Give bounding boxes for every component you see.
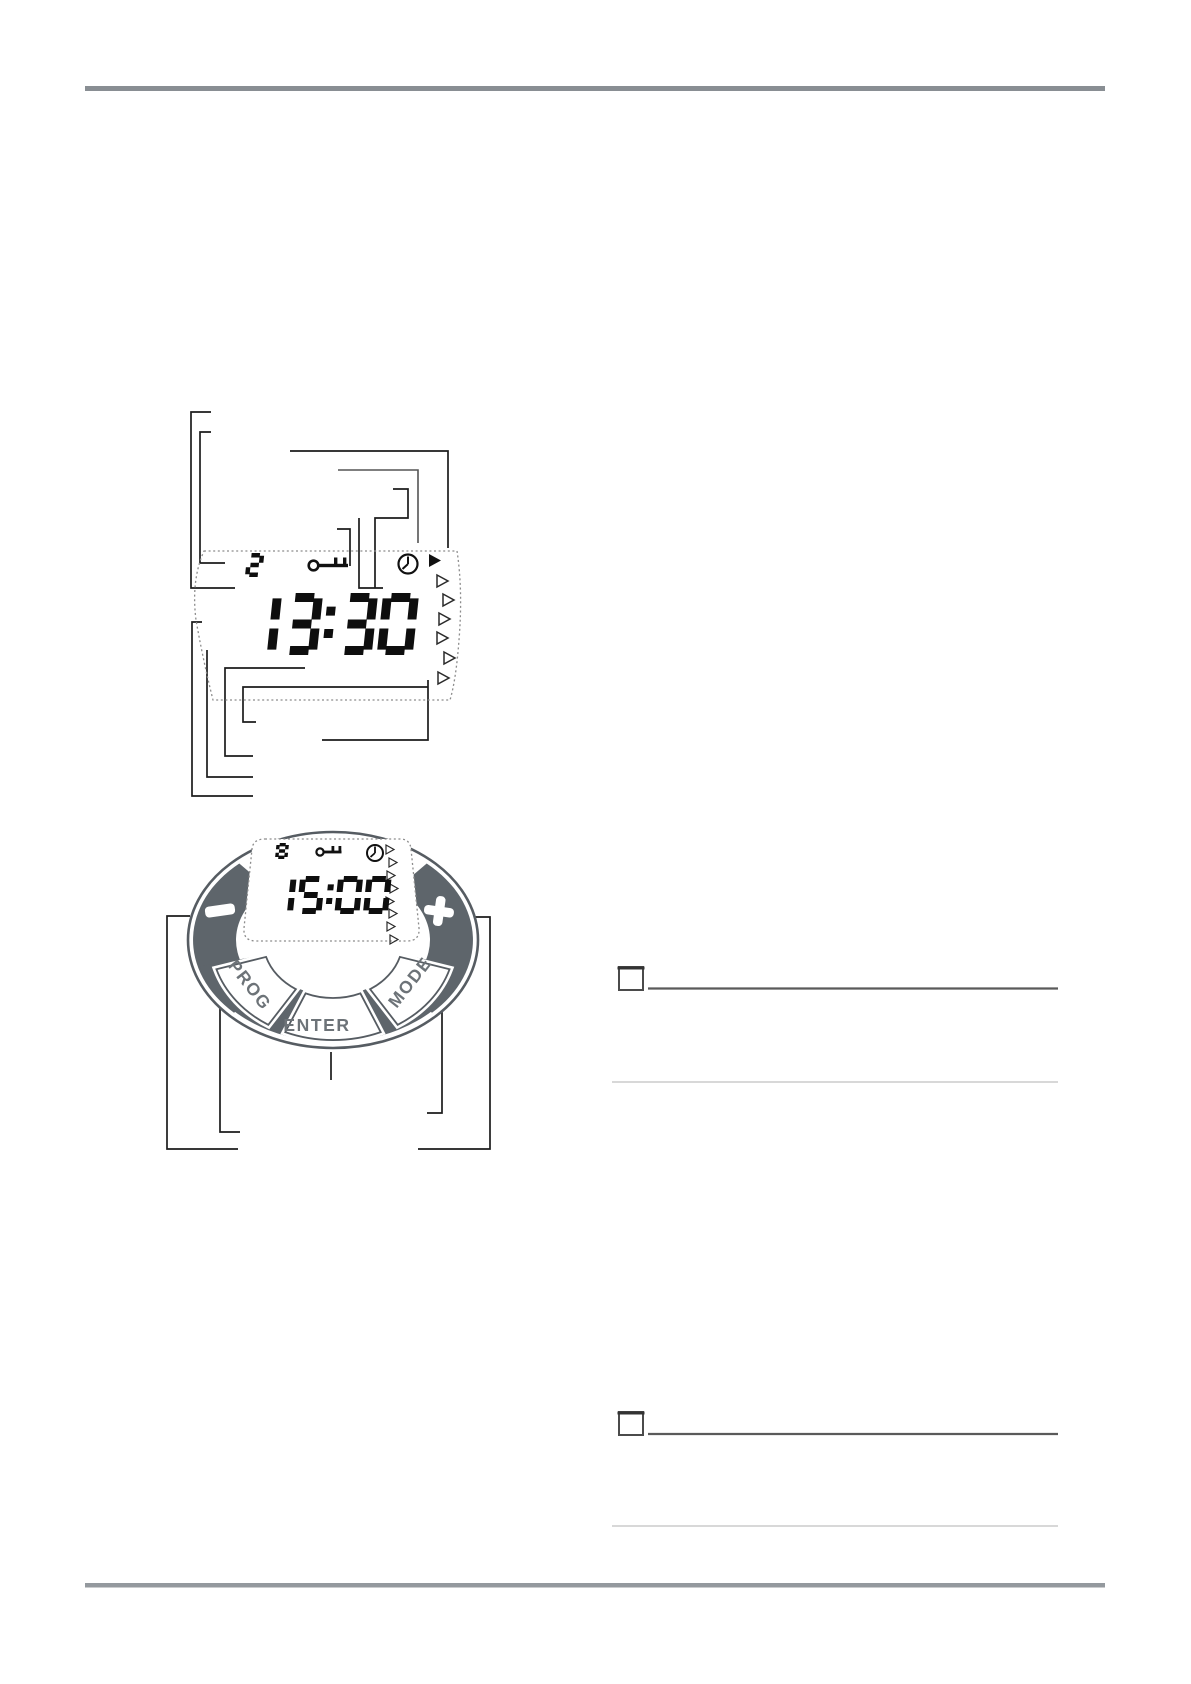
- time-display: [267, 593, 419, 655]
- day-marker-icon: [443, 594, 454, 606]
- day-marker-icon: [444, 652, 455, 664]
- note-block: [612, 967, 1058, 1082]
- program-number-display: [245, 553, 265, 577]
- callout-line: [200, 432, 225, 563]
- clock-icon: [399, 555, 418, 574]
- key-icon: [309, 558, 348, 571]
- note-checkbox: [619, 967, 643, 990]
- day-marker-icon: [437, 632, 448, 644]
- callout-line: [220, 1007, 240, 1132]
- day-marker-icon: [439, 613, 450, 625]
- callout-line: [290, 451, 448, 548]
- active-day-marker-icon: [429, 554, 441, 567]
- display-outline: [195, 551, 461, 700]
- lcd-display-figure: [191, 412, 461, 796]
- callout-line: [322, 680, 428, 740]
- callout-line: [359, 518, 383, 588]
- callout-line: [207, 650, 253, 777]
- callout-line: [243, 687, 428, 722]
- manual-page: PROG ENTER MODE: [0, 0, 1191, 1684]
- callout-line: [191, 412, 235, 588]
- day-marker-icon: [438, 672, 449, 684]
- callout-line: [225, 668, 305, 756]
- page-rule-bottom: [85, 1583, 1105, 1588]
- day-marker-icon: [437, 575, 448, 587]
- note-checkbox: [619, 1412, 643, 1435]
- page-rule-top: [85, 86, 1105, 91]
- enter-button-label: ENTER: [283, 1015, 350, 1035]
- note-block: [612, 1412, 1058, 1526]
- timer-device-figure: PROG ENTER MODE: [167, 832, 490, 1149]
